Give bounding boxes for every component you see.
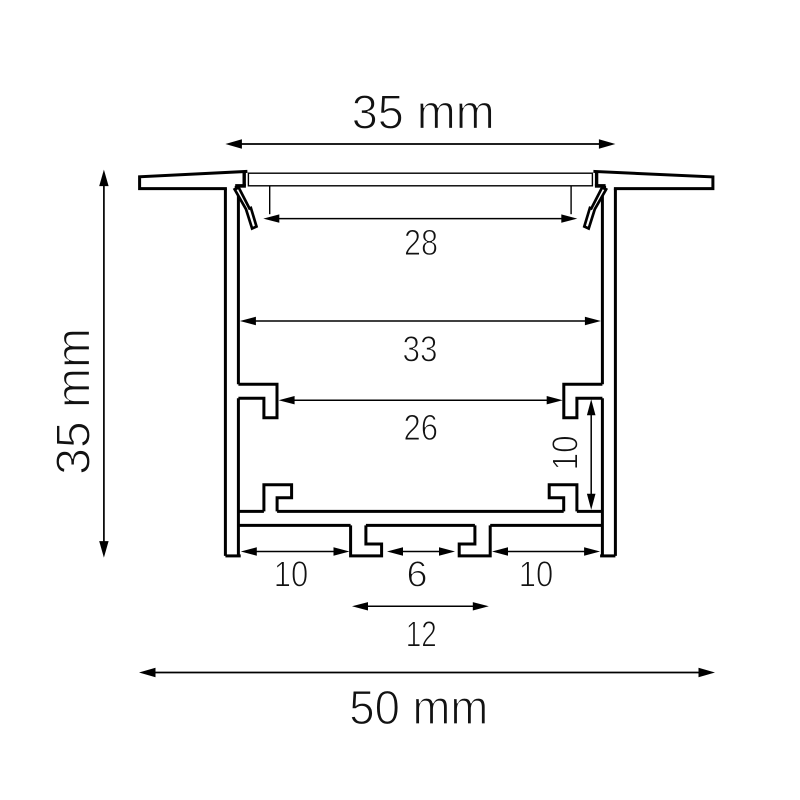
svg-text:10: 10: [274, 553, 309, 594]
svg-text:10: 10: [545, 435, 586, 470]
svg-text:35 mm: 35 mm: [48, 328, 101, 475]
svg-text:50 mm: 50 mm: [349, 682, 488, 735]
svg-text:33: 33: [403, 328, 438, 369]
svg-text:6: 6: [407, 553, 428, 594]
svg-text:28: 28: [404, 222, 438, 263]
svg-text:35 mm: 35 mm: [352, 87, 495, 140]
svg-text:10: 10: [519, 553, 554, 594]
svg-text:12: 12: [406, 614, 437, 655]
svg-text:26: 26: [403, 407, 438, 448]
